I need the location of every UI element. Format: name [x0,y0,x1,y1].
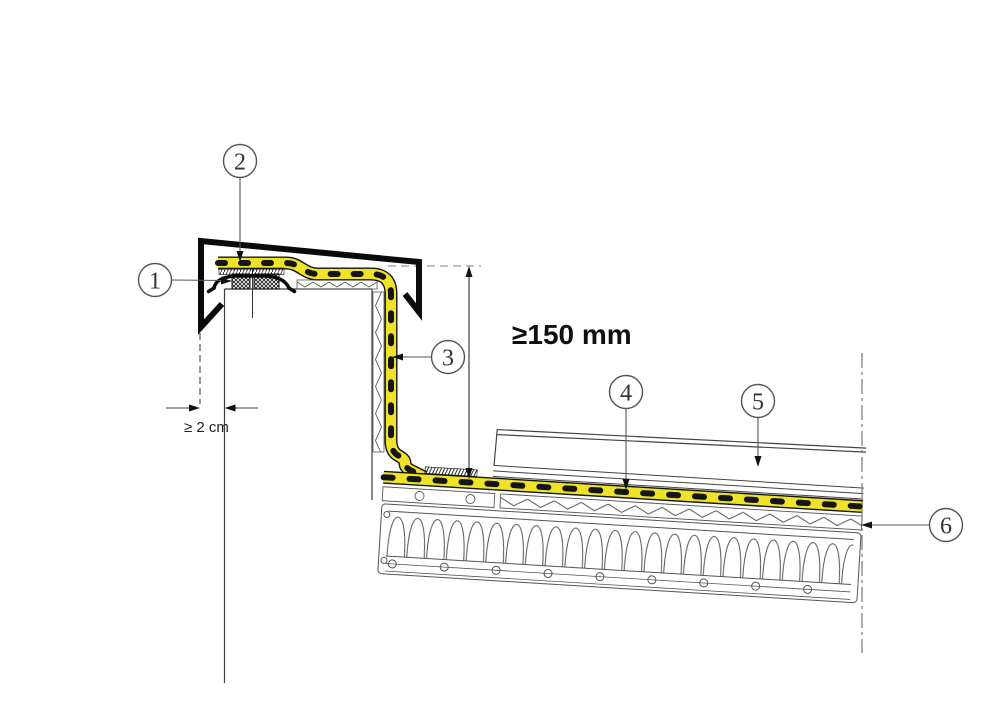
sealing-tape-top [219,268,284,275]
dim-arrow-up [466,266,473,277]
separation-board-vertical [373,292,384,452]
callout-5: 5 [742,385,775,468]
callout-2-label: 2 [234,150,246,176]
upper-roof-covering [494,426,866,489]
membrane-parapet [218,263,424,477]
callout-3-label: 3 [442,346,454,372]
callout-4-label: 4 [620,381,632,407]
callout-6-label: 6 [940,514,952,540]
callout-3: 3 [392,341,465,374]
dim-arrow-left [225,405,236,412]
callout-6: 6 [861,509,963,542]
callout-5-label: 5 [752,390,764,416]
parapet-roof-detail-drawing: ≥150 mm ≥ 2 cm 1 2 3 [0,0,1000,710]
dimension-150mm: ≥150 mm [466,266,632,479]
parapet-wall [225,289,373,683]
dimension-2cm-label: ≥ 2 cm [184,419,229,436]
roof-assembly [378,419,867,603]
detail-drawing-page: ≥150 mm ≥ 2 cm 1 2 3 [0,0,1000,710]
dim-arrow-right [189,405,200,412]
dimension-150mm-label: ≥150 mm [512,319,632,350]
dimension-2cm: ≥ 2 cm [166,333,258,436]
callout-1-label: 1 [149,269,161,295]
callout-1: 1 [139,264,233,297]
separation-board-top [297,280,377,289]
